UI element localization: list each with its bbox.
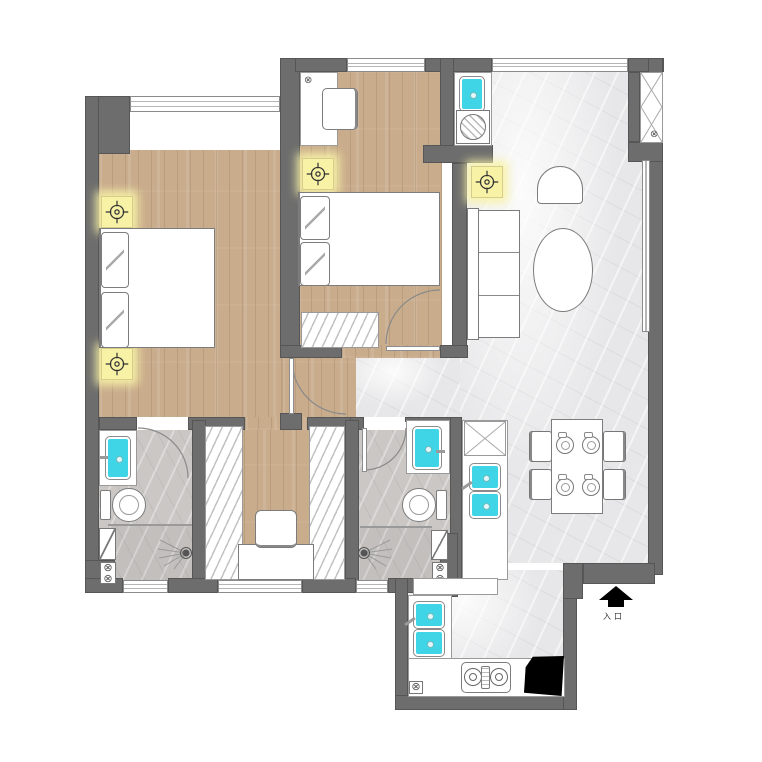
wall [280,413,302,430]
wall [345,420,359,582]
wall [295,58,347,72]
toilet-icon [112,488,146,522]
door-arc-master [292,360,346,414]
valve-icon: ⊗ [411,681,420,693]
window [492,58,628,72]
wall [452,163,467,358]
place-setting [582,478,600,496]
washing-machine-icon [456,110,490,144]
pillow [300,196,330,240]
wall [302,578,356,593]
wall [192,420,206,582]
window [218,580,302,593]
pillow [300,242,330,286]
wall [425,58,492,72]
sofa-seat [478,210,520,338]
basin [413,427,441,469]
wall [168,578,218,593]
armchair [537,166,583,204]
kitchen-sink [414,630,444,656]
desk-chair [322,88,358,130]
wall [583,563,655,584]
stove-grate [481,666,490,689]
wall [395,578,408,710]
toilet-tank [100,490,111,520]
dining-chair [529,431,552,462]
vanity-table [238,544,314,580]
window [123,580,168,593]
kitchen-sink [470,464,500,490]
door-arc-bathroom1 [138,428,188,478]
place-setting [556,436,574,454]
laundry-basin [460,77,484,111]
entrance-label: 入口 [603,611,625,622]
stove-burner [464,668,482,686]
window [347,58,425,72]
water-heater [431,530,448,560]
pillow [101,292,129,348]
wall [99,417,137,430]
place-setting [556,478,574,496]
place-setting [582,436,600,454]
toilet-icon [402,488,436,522]
basin [106,437,130,479]
door-arc-bedroom2 [386,290,440,344]
refrigerator [524,656,564,696]
wall [423,145,493,163]
wall [395,695,577,710]
wardrobe-rail [301,312,379,348]
faucet [436,450,445,453]
kitchen-island [413,578,498,595]
valve-icon: ⊗ [304,76,312,86]
kitchen-sink [414,602,444,628]
wall [440,345,468,358]
kitchen-sink [470,492,500,518]
coffee-table [533,228,593,312]
entrance-arrow-stem [608,599,624,607]
valve-icon: ⊗ [103,573,112,585]
faucet [99,456,108,459]
wardrobe-rail [309,426,345,580]
valve-pair: ⊗ ⊗ [100,562,116,584]
toilet-tank [436,490,447,520]
valve-box: ⊗ [409,681,423,694]
entrance-arrow-icon [599,586,633,600]
door-leaf [386,346,440,351]
wall [628,72,640,142]
ceiling-light-icon [101,348,133,380]
floor-hall-marble [356,356,460,418]
ceiling-light-icon [471,166,503,198]
dining-chair [603,469,626,500]
door-leaf [289,358,294,414]
wall [280,58,300,356]
vanity-stool [255,510,297,548]
water-heater [99,528,116,560]
wall [563,597,577,710]
wall [563,563,583,599]
stove-burner [490,668,508,686]
shower-divider [360,526,432,528]
window [130,96,280,112]
door-arc-bathroom2 [364,428,406,470]
ceiling-light-icon [302,158,334,190]
sofa-cushion-divider [479,295,519,296]
door-leaf [362,428,367,472]
wall [85,96,99,592]
wall [628,142,663,162]
pillow [101,232,129,288]
ceiling-light-icon [101,196,133,228]
shower-divider [108,524,192,526]
valve-icon: ⊗ [650,130,658,140]
floor-plan: ⊗ ⊗ 入口 ⊗ [0,0,762,762]
shower-drain-icon [358,536,392,570]
dining-chair [529,469,552,500]
window [356,580,388,593]
counter-cabinet [464,421,506,456]
window [642,160,650,332]
sofa-cushion-divider [479,252,519,253]
dining-chair [603,431,626,462]
shower-drain-icon [158,536,192,570]
